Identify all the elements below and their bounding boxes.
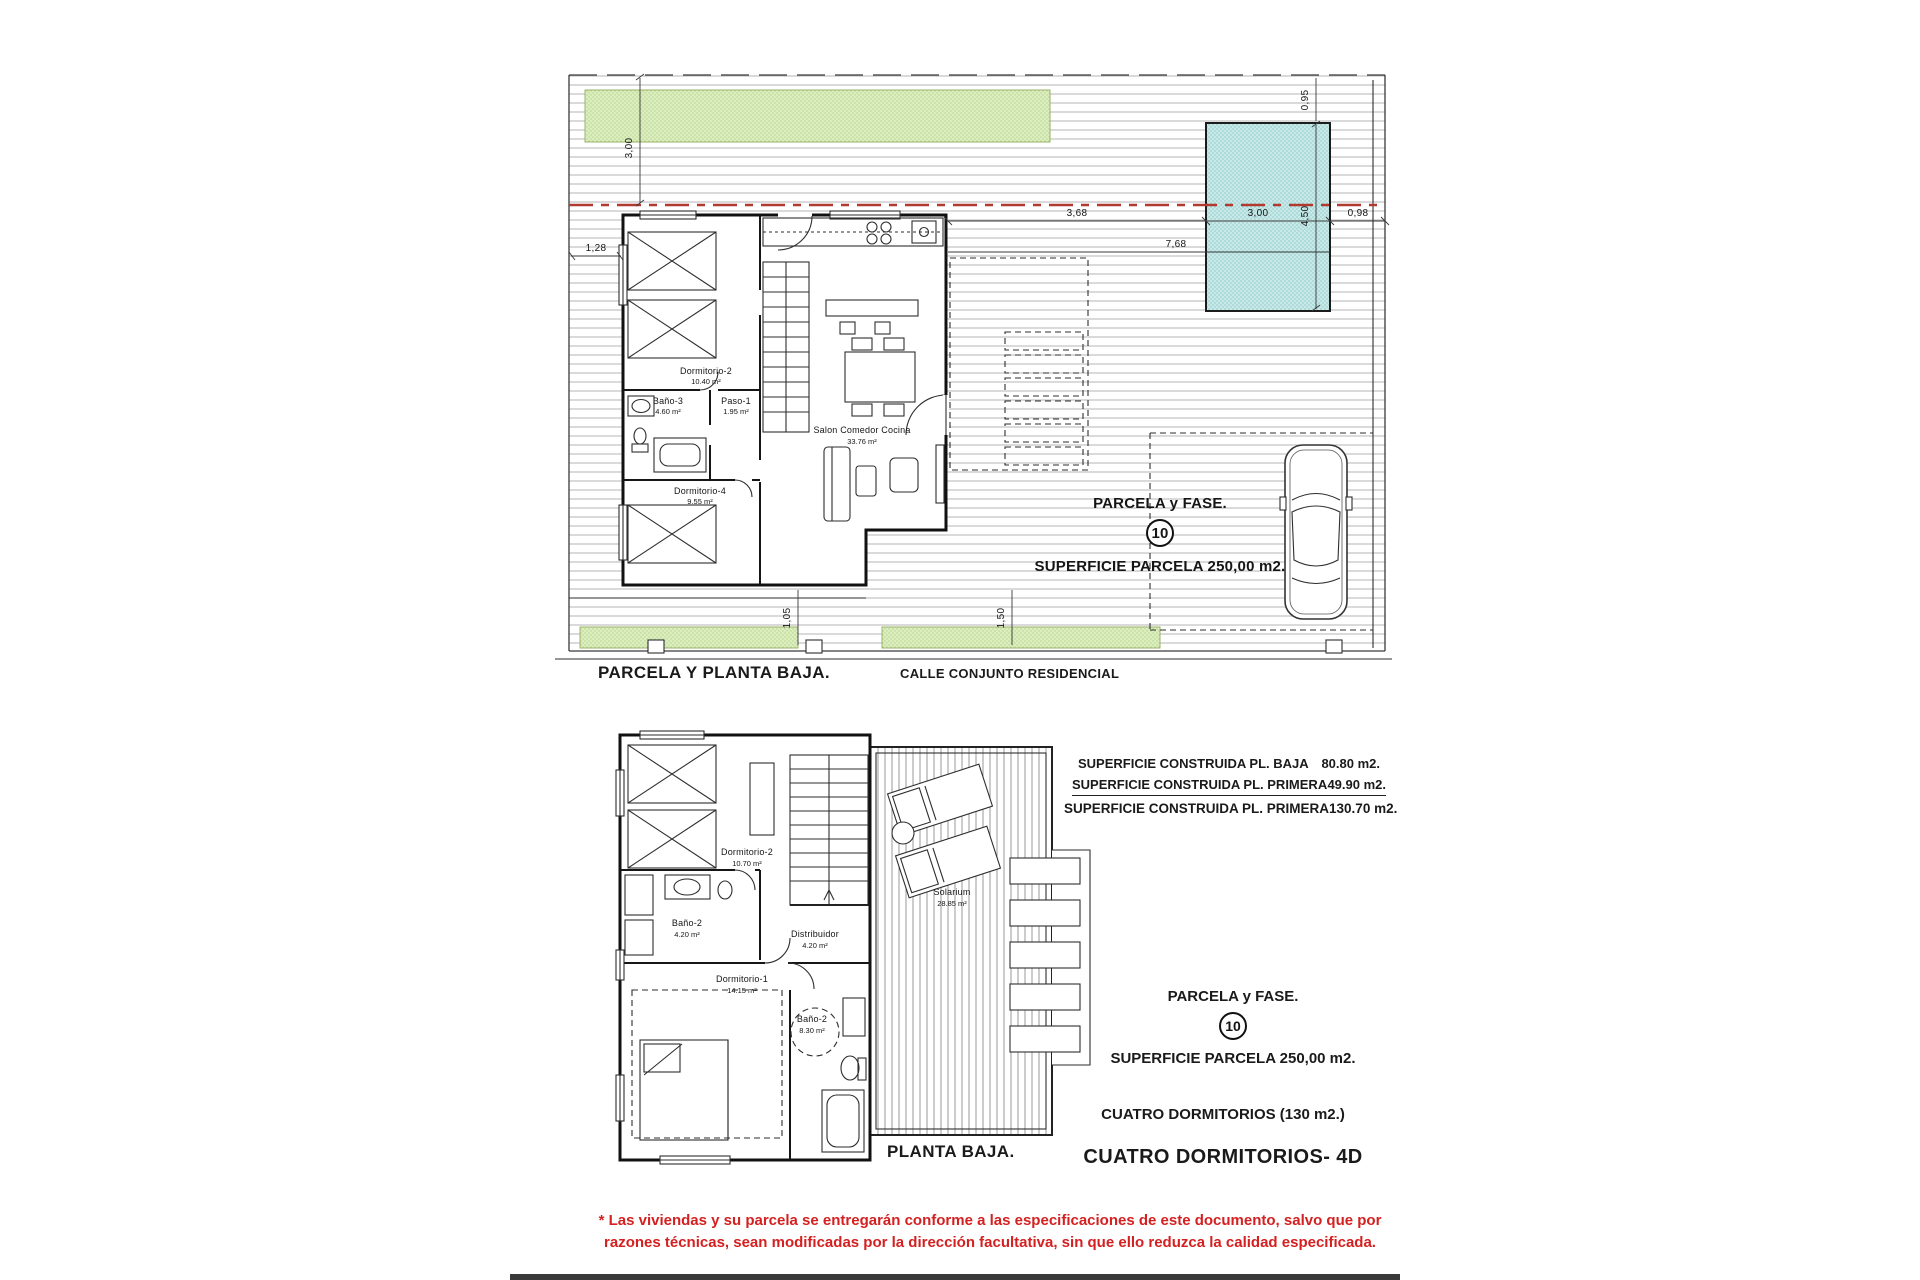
side-table [892, 822, 914, 844]
room-area: 10.70 m² [732, 859, 762, 868]
room-label: Baño-2 [797, 1014, 827, 1024]
top-plan-title: PARCELA Y PLANTA BAJA. [598, 663, 830, 683]
dim-label: 0,98 [1348, 208, 1369, 219]
top-plan: Dormitorio-2 10.40 m² Baño-3 4.60 m² Pas… [555, 74, 1392, 659]
info-label: SUPERFICIE CONSTRUIDA PL. PRIMERA [1064, 801, 1329, 816]
room-label: Dormitorio-2 [680, 366, 732, 376]
summary-bedrooms: CUATRO DORMITORIOS (130 m2.) [1058, 1106, 1388, 1123]
info-label: SUPERFICIE CONSTRUIDA PL. PRIMERA [1072, 777, 1327, 792]
room-area: 8.30 m² [799, 1026, 825, 1035]
dim-label: 1,28 [586, 243, 607, 254]
fence-post [648, 640, 664, 653]
summary-parcel-area: SUPERFICIE PARCELA 250,00 m2. [1068, 1050, 1398, 1067]
room-label: Baño-2 [672, 918, 702, 928]
dim-label: 4,50 [1300, 206, 1311, 227]
room-area: 33.76 m² [847, 437, 877, 446]
room-area: 9.55 m² [687, 497, 713, 506]
dim-label: 3,68 [1067, 208, 1088, 219]
car-icon [1280, 445, 1352, 619]
room-area: 4.20 m² [674, 930, 700, 939]
parcel-number: 10 [1151, 525, 1168, 542]
room-label: Dormitorio-4 [674, 486, 726, 496]
room-label: Salon Comedor Cocina [813, 425, 910, 435]
disclaimer: * Las viviendas y su parcela se entregar… [500, 1210, 1480, 1254]
summary-model: CUATRO DORMITORIOS- 4D [1058, 1146, 1388, 1169]
room-area: 10.40 m² [691, 377, 721, 386]
parcel-number-badge: 10 [1219, 1012, 1247, 1040]
dim-label: 1,05 [782, 608, 793, 629]
house-first-floor: Dormitorio-2 10.70 m² Baño-2 4.20 m² Dis… [616, 731, 870, 1164]
green-strip-bottom-left [580, 627, 798, 648]
room-label: Paso-1 [721, 396, 751, 406]
info-value: 49.90 m2. [1327, 777, 1386, 792]
floor-plan-sheet: Dormitorio-2 10.40 m² Baño-3 4.60 m² Pas… [0, 0, 1920, 1280]
street-label: CALLE CONJUNTO RESIDENCIAL [900, 666, 1119, 681]
fence-post [1326, 640, 1342, 653]
plans-drawing: Dormitorio-2 10.40 m² Baño-3 4.60 m² Pas… [0, 0, 1920, 1280]
green-strip-bottom-right [882, 627, 1160, 648]
bottom-plan: Dormitorio-2 10.70 m² Baño-2 4.20 m² Dis… [616, 731, 1090, 1164]
dim-label: 1,50 [996, 608, 1007, 629]
dim-label: 3,00 [1248, 208, 1269, 219]
info-line-2: SUPERFICIE CONSTRUIDA PL. PRIMERA 49.90 … [1072, 777, 1386, 796]
info-label: SUPERFICIE CONSTRUIDA PL. BAJA [1078, 756, 1309, 771]
parcel-area: SUPERFICIE PARCELA 250,00 m2. [1035, 558, 1286, 575]
disclaimer-line-1: * Las viviendas y su parcela se entregar… [500, 1210, 1480, 1232]
disclaimer-line-2: razones técnicas, sean modificadas por l… [500, 1232, 1480, 1254]
dim-label: 0,95 [1300, 90, 1311, 111]
summary-parcel-number-wrap: 10 [1068, 1012, 1398, 1040]
parcel-label: PARCELA y FASE. [1093, 495, 1227, 512]
room-label: Solarium [933, 887, 970, 897]
dim-label: 3,00 [624, 138, 635, 159]
room-label: Distribuidor [791, 929, 839, 939]
room-label: Dormitorio-1 [716, 974, 768, 984]
bottom-bar [510, 1274, 1400, 1280]
dim-label: 7,68 [1166, 239, 1187, 250]
info-line-1: SUPERFICIE CONSTRUIDA PL. BAJA 80.80 m2. [1078, 756, 1380, 771]
green-strip-top [585, 90, 1050, 142]
room-label: Dormitorio-2 [721, 847, 773, 857]
room-area: 28.85 m² [937, 899, 967, 908]
summary-parcel-label: PARCELA y FASE. [1068, 988, 1398, 1005]
room-area: 4.20 m² [802, 941, 828, 950]
room-label: Baño-3 [653, 396, 683, 406]
room-area: 14.15 m² [727, 986, 757, 995]
room-area: 1.95 m² [723, 407, 749, 416]
info-value: 130.70 m2. [1329, 801, 1397, 816]
bottom-plan-title: PLANTA BAJA. [887, 1142, 1015, 1162]
room-area: 4.60 m² [655, 407, 681, 416]
fence-post [806, 640, 822, 653]
info-value: 80.80 m2. [1321, 756, 1380, 771]
info-line-3: SUPERFICIE CONSTRUIDA PL. PRIMERA 130.70… [1064, 801, 1396, 816]
